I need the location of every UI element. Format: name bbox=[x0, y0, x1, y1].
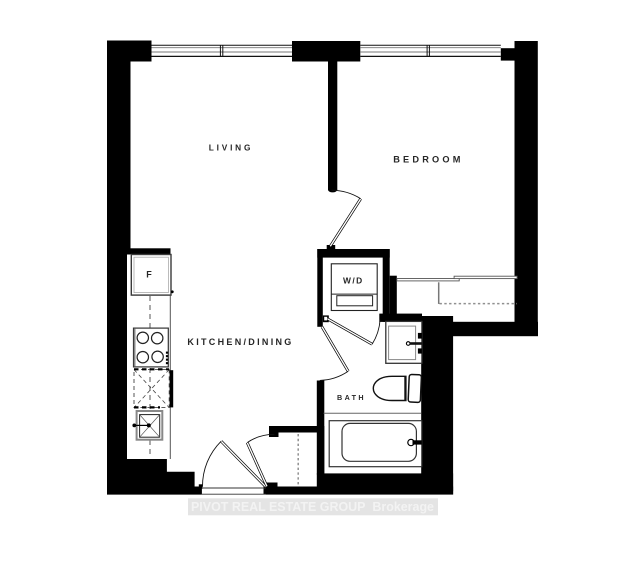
svg-text:F: F bbox=[146, 270, 152, 280]
svg-text:KITCHEN/DINING: KITCHEN/DINING bbox=[187, 337, 293, 347]
svg-text:LIVING: LIVING bbox=[209, 143, 253, 153]
svg-text:BATH: BATH bbox=[337, 393, 366, 402]
svg-text:BEDROOM: BEDROOM bbox=[393, 155, 463, 165]
svg-text:W/D: W/D bbox=[343, 275, 363, 285]
svg-text:PIVOT REAL ESTATE GROUP Broke: PIVOT REAL ESTATE GROUP Brokerage bbox=[191, 499, 434, 514]
